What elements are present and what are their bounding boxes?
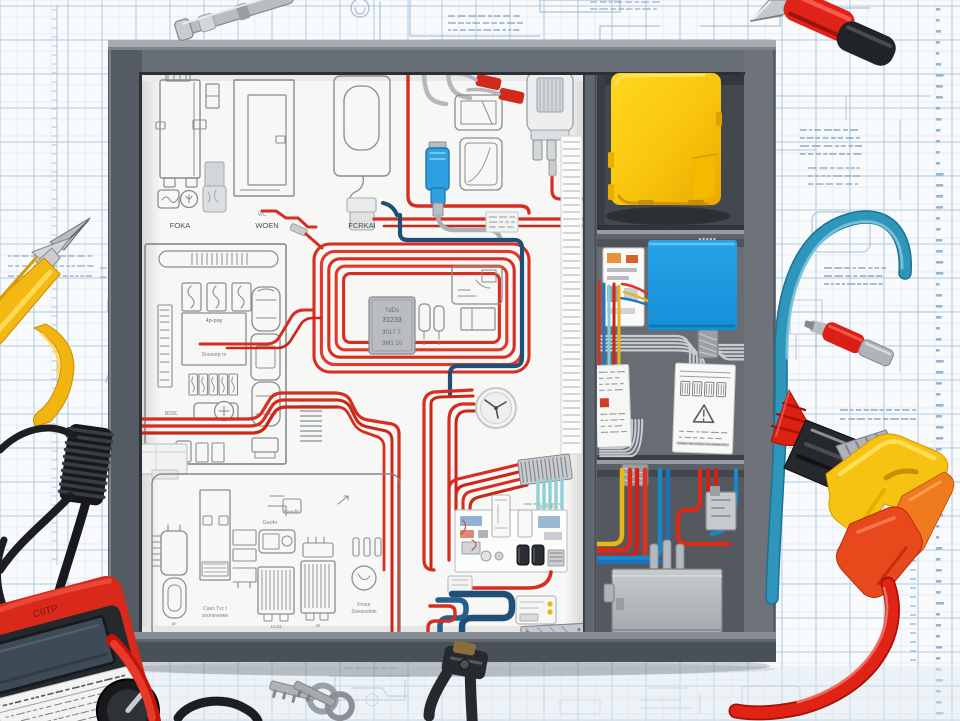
- svg-text:o: o: [438, 341, 441, 347]
- svg-text:Frmur: Frmur: [357, 602, 371, 608]
- svg-text:Guwhr: Guwhr: [263, 520, 278, 526]
- svg-text:a: a: [423, 341, 426, 347]
- svg-text:BDSL: BDSL: [165, 411, 178, 417]
- svg-text:11,03: 11,03: [271, 624, 282, 629]
- svg-text:4p-pay: 4p-pay: [206, 318, 223, 324]
- svg-text:WC: WC: [258, 212, 267, 218]
- svg-text:an: an: [171, 621, 177, 626]
- svg-text:s0: s0: [316, 623, 321, 628]
- svg-text:FCRKAI: FCRKAI: [348, 221, 376, 230]
- svg-text:snonevwwe: snonevwwe: [202, 613, 228, 619]
- svg-text:Riwwfhr: Riwwfhr: [284, 509, 301, 514]
- svg-text:3017 T.: 3017 T.: [382, 330, 402, 336]
- svg-text:Casn Tvc t: Casn Tvc t: [203, 606, 227, 612]
- svg-text:FOKA: FOKA: [170, 221, 190, 230]
- svg-text:Snoearp ro: Snoearp ro: [202, 352, 227, 358]
- svg-text:3M1 10: 3M1 10: [382, 341, 403, 347]
- svg-text:?dDs: ?dDs: [385, 308, 399, 314]
- svg-text:WOEN: WOEN: [255, 221, 278, 230]
- svg-text:Zweavstvte: Zweavstvte: [351, 609, 377, 615]
- svg-text:31233: 31233: [382, 317, 402, 324]
